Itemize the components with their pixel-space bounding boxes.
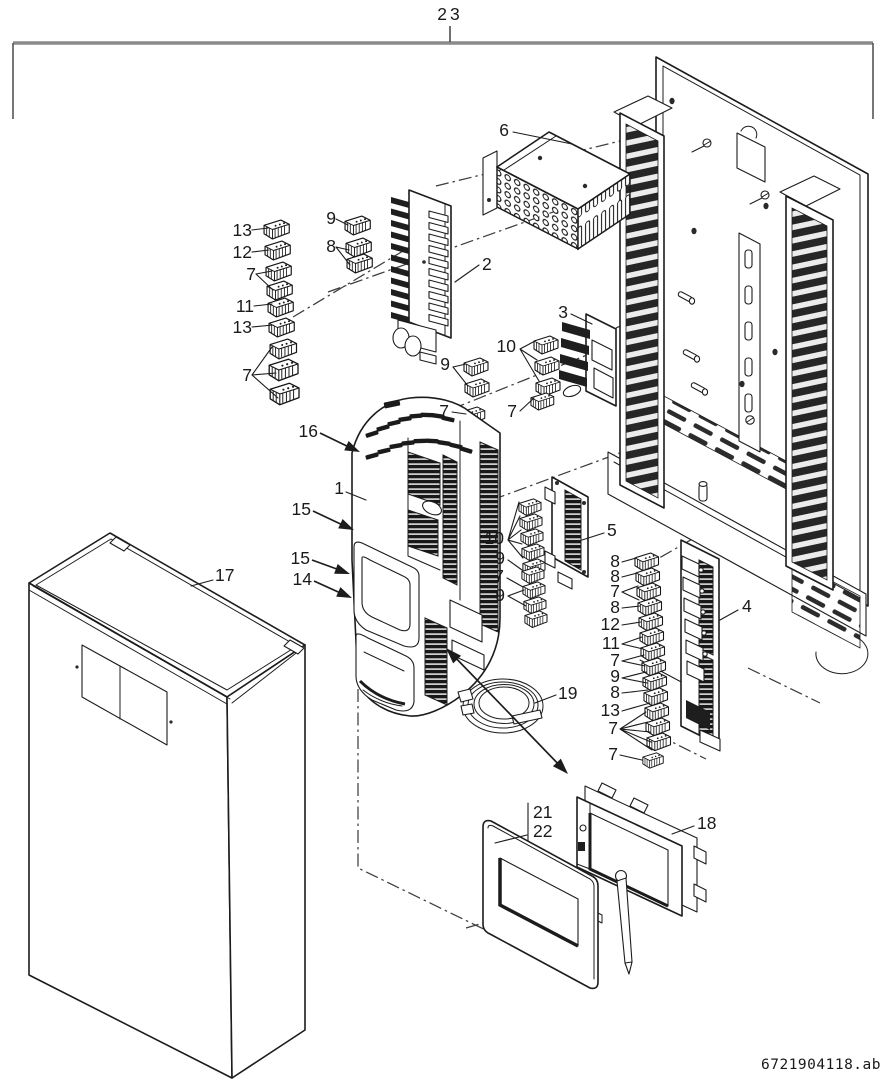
panel-bolt [699,482,707,501]
board2-dark-connectors [391,197,409,323]
terminal-block-stack-mid-10 [531,336,560,410]
callout-5: 5 [607,520,617,540]
callout-16: 16 [299,421,318,441]
assembly-arrow [442,644,572,778]
callout-11a: 11 [236,296,254,316]
relay-board-3 [559,314,616,406]
callout-1: 1 [334,478,344,498]
callout-13b: 13 [233,317,252,337]
io-board-2 [391,190,451,364]
callout-7e: 7 [494,566,504,586]
callout-19: 19 [558,683,577,703]
callout-7h: 7 [608,718,618,738]
connector-board-4 [681,540,720,751]
callout-9a: 9 [326,208,336,228]
callout-13c: 13 [601,700,620,720]
terminal-block-stack-near-5 [519,499,547,628]
enclosure-cover [29,533,305,1078]
right-vent-channel [780,176,840,590]
callout-9c: 9 [495,548,505,568]
callout-14: 14 [293,569,313,589]
callout-6: 6 [499,120,509,140]
diagram-canvas: 23 13 12 7 11 13 7 9 8 2 6 3 10 9 7 7 16… [0,0,889,1080]
callout-7d: 7 [507,401,517,421]
callout-9d: 9 [495,585,505,605]
callout-8e: 8 [610,682,620,702]
power-supply-module [483,132,630,249]
callout-23: 23 [437,4,462,24]
callout-18: 18 [697,813,716,833]
exploded-parts-diagram: 23 13 12 7 11 13 7 9 8 2 6 3 10 9 7 7 16… [0,0,889,1080]
callout-4: 4 [742,596,752,616]
callout-3: 3 [558,302,568,322]
callout-7a: 7 [246,264,256,284]
callout-10b: 10 [485,528,505,548]
control-unit [352,397,500,716]
callout-8a: 8 [326,236,336,256]
drawing-part-code: 6721904118.ab [761,1057,881,1073]
callout-21: 21 [533,802,552,822]
connector-board-5 [545,477,588,589]
din-rail [739,233,760,452]
callout-13a: 13 [233,220,252,240]
callout-7c: 7 [439,401,449,421]
callout-10a: 10 [497,336,517,356]
callout-9b: 9 [440,354,450,374]
left-vent-channel [614,96,672,508]
callout-12a: 12 [233,242,252,262]
callout-15a: 15 [292,499,311,519]
callout-15b: 15 [291,548,310,568]
callout-22: 22 [533,821,552,841]
callout-2: 2 [482,254,492,274]
callout-7b: 7 [242,365,252,385]
callout-12b: 12 [601,614,620,634]
callout-7i: 7 [608,744,618,764]
callout-17: 17 [215,565,234,585]
terminal-block-stack-left [264,220,299,405]
